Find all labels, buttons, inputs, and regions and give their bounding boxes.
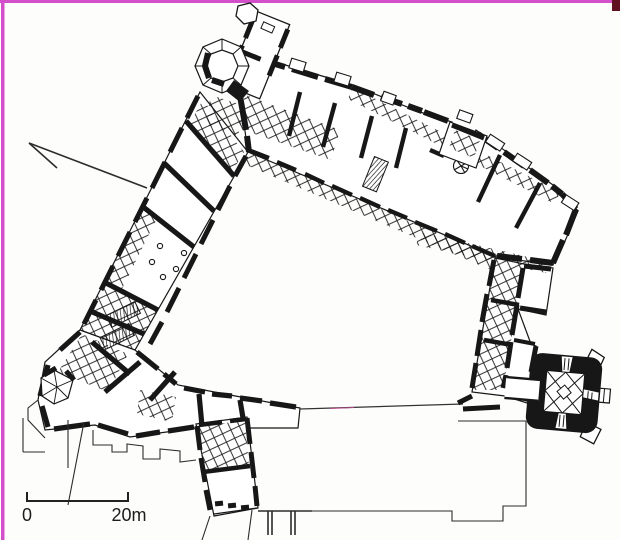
- scan-border-top: [0, 0, 620, 3]
- scan-corner-mark: [612, 0, 620, 11]
- scale-bar-max-label: 20m: [111, 505, 146, 525]
- floor-plan-drawing: 0 20m: [0, 0, 620, 540]
- scan-border-left: [1, 0, 5, 540]
- north-arrow-icon: [29, 143, 147, 188]
- north-turret: [236, 3, 258, 24]
- castle-plan: [23, 3, 614, 540]
- scale-bar-zero-label: 0: [22, 505, 32, 525]
- octagon-tower: [195, 39, 249, 102]
- scanned-floor-plan-page: 0 20m: [0, 0, 620, 540]
- scale-bar: 0 20m: [22, 492, 147, 525]
